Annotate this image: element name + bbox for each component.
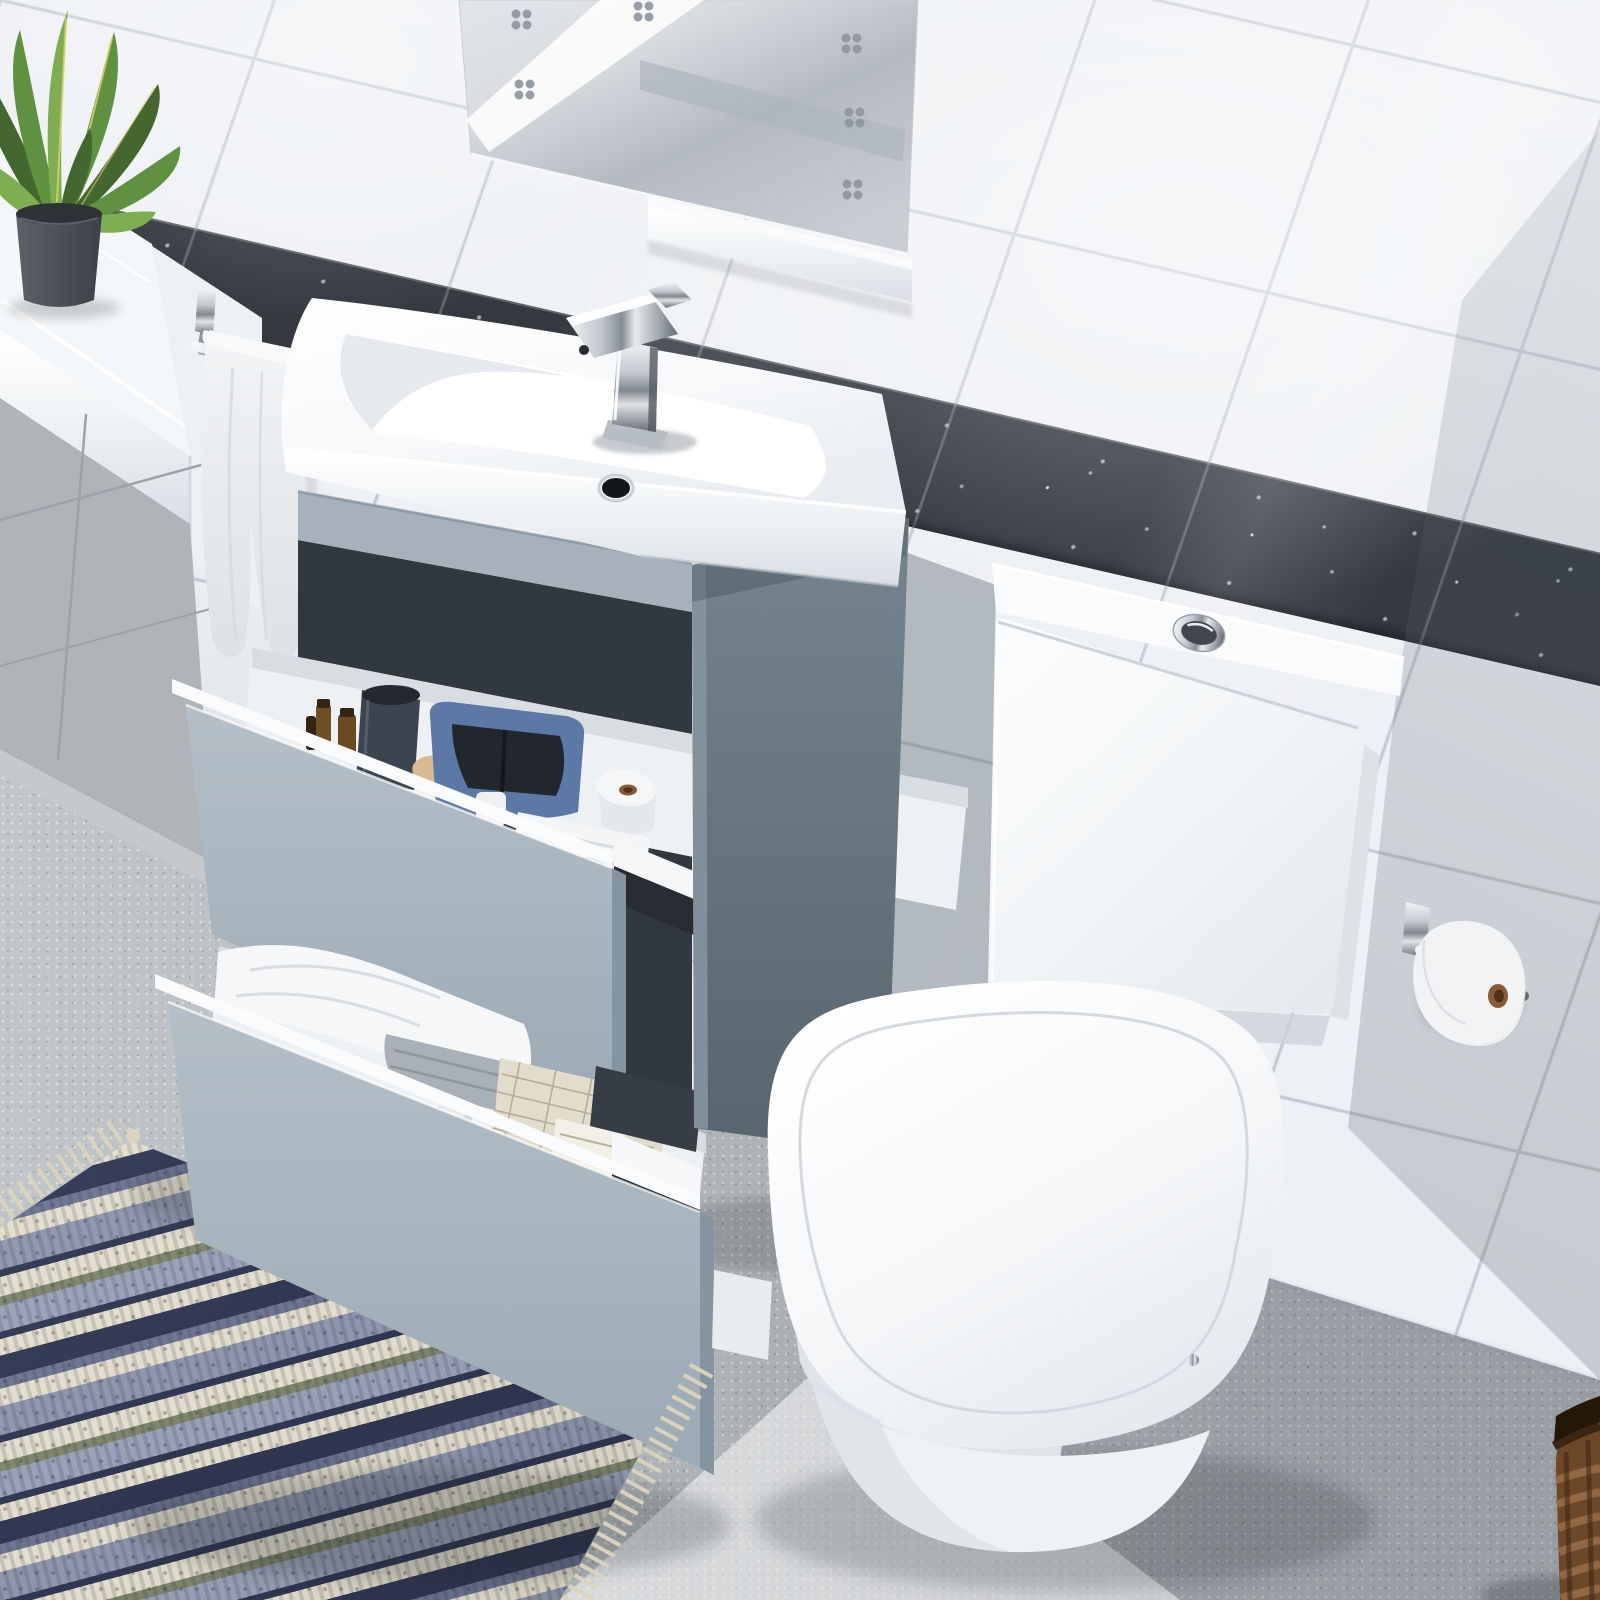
toilet-seat [768, 981, 1285, 1450]
wicker-basket [1480, 1396, 1600, 1600]
bathroom-scene [0, 0, 1600, 1600]
cistern [988, 618, 1364, 1014]
plant-pot [16, 214, 102, 307]
overflow-hole [602, 478, 630, 498]
scene-objects [0, 0, 1600, 1600]
faucet-spout [579, 345, 589, 355]
toilet-roll-holder [1402, 902, 1526, 1046]
